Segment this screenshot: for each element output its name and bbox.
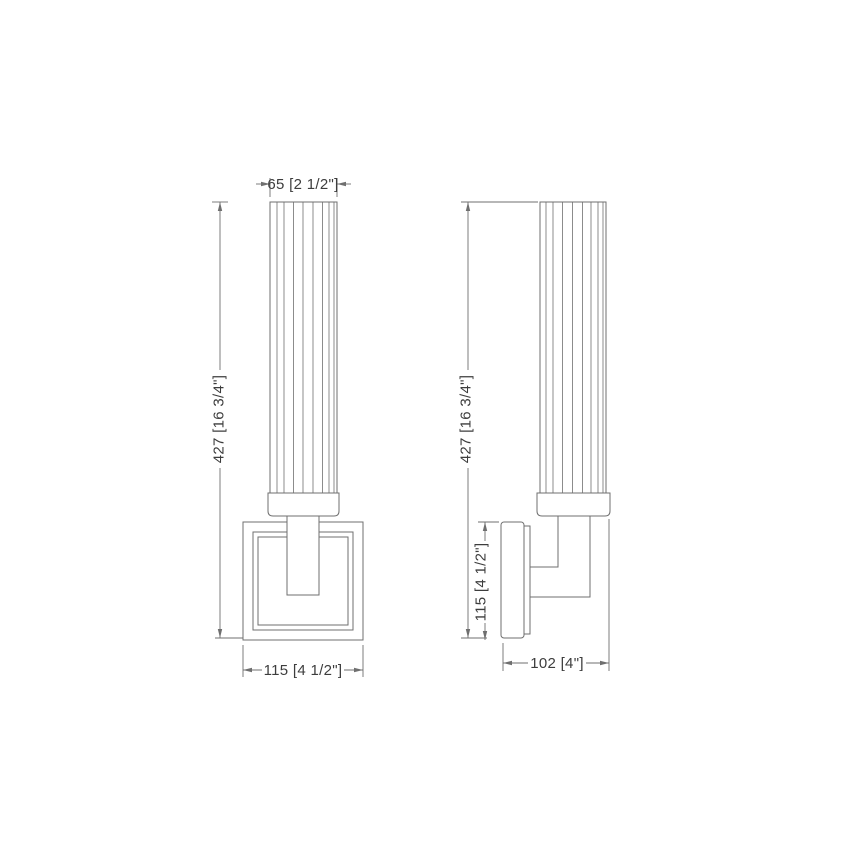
dim-label-shade-width: 65 [2 1/2"] [267, 176, 338, 193]
side-view [501, 202, 610, 638]
dim-label-depth: 102 [4"] [530, 655, 584, 672]
dim-backplate-height: 115 [4 1/2"] [473, 522, 500, 640]
glass-shade-front [270, 202, 337, 493]
drawing-canvas: 65 [2 1/2"] 427 [16 3/4"] 115 [4 1/2"] 4… [0, 0, 850, 850]
front-view [243, 202, 363, 640]
dim-label-height-front: 427 [16 3/4"] [211, 375, 228, 463]
dim-label-height-side: 427 [16 3/4"] [458, 375, 475, 463]
dim-height-front: 427 [16 3/4"] [211, 202, 244, 638]
stem-front [287, 516, 319, 595]
dim-shade-width: 65 [2 1/2"] [256, 176, 351, 197]
arm-side [530, 516, 590, 597]
dim-label-backplate-width: 115 [4 1/2"] [264, 662, 343, 679]
collar-front [268, 493, 339, 516]
dim-label-backplate-height: 115 [4 1/2"] [473, 543, 490, 622]
glass-shade-side [540, 202, 606, 493]
collar-side [537, 493, 610, 516]
dim-backplate-width: 115 [4 1/2"] [243, 645, 363, 679]
backplate-side [501, 522, 530, 638]
